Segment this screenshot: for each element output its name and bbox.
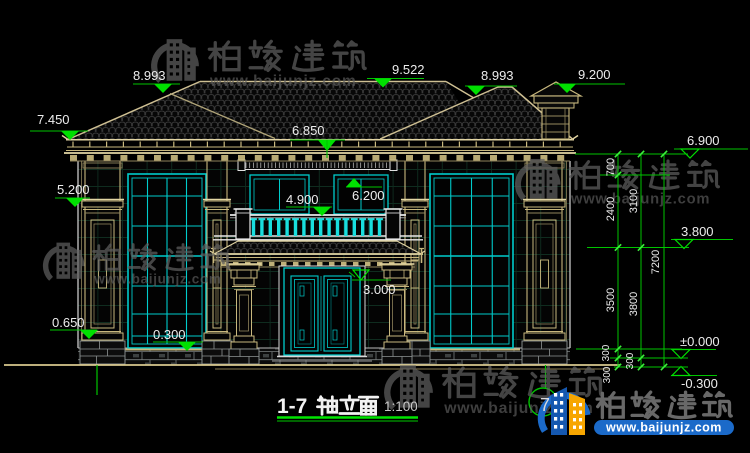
svg-text:4.900: 4.900 (286, 192, 319, 207)
svg-text:8.993: 8.993 (481, 68, 514, 83)
svg-text:6.900: 6.900 (687, 133, 720, 148)
svg-text:5.200: 5.200 (57, 182, 90, 197)
svg-text:6.200: 6.200 (352, 188, 385, 203)
svg-text:3100: 3100 (628, 189, 640, 213)
svg-text:1-7: 1-7 (277, 395, 307, 418)
svg-text:700: 700 (605, 158, 617, 176)
svg-text:300: 300 (601, 344, 612, 361)
svg-text:9.200: 9.200 (578, 67, 611, 82)
svg-text:9.522: 9.522 (392, 62, 425, 77)
svg-text:-0.300: -0.300 (681, 376, 718, 391)
svg-text:www.baijunjz.com: www.baijunjz.com (605, 421, 722, 435)
svg-text:7200: 7200 (650, 250, 662, 274)
svg-text:www.baijunjz.com: www.baijunjz.com (93, 271, 221, 286)
svg-text:1:100: 1:100 (384, 399, 418, 414)
svg-text:3500: 3500 (605, 288, 617, 312)
svg-text:0.650: 0.650 (52, 315, 85, 330)
svg-text:3.800: 3.800 (681, 224, 714, 239)
svg-text:300: 300 (625, 352, 636, 369)
svg-text:7.450: 7.450 (37, 112, 70, 127)
svg-text:0.300: 0.300 (153, 327, 186, 342)
svg-text:7: 7 (540, 395, 550, 415)
svg-text:8.993: 8.993 (133, 68, 166, 83)
svg-text:3800: 3800 (628, 292, 640, 316)
svg-text:2400: 2400 (605, 197, 617, 221)
svg-text:±0.000: ±0.000 (680, 334, 720, 349)
svg-text:www.baijunjz.com: www.baijunjz.com (209, 73, 357, 90)
svg-text:300: 300 (602, 366, 613, 383)
svg-text:3.000: 3.000 (363, 282, 396, 297)
svg-text:www.baijunjz.com: www.baijunjz.com (570, 191, 710, 207)
svg-text:6.850: 6.850 (292, 123, 325, 138)
